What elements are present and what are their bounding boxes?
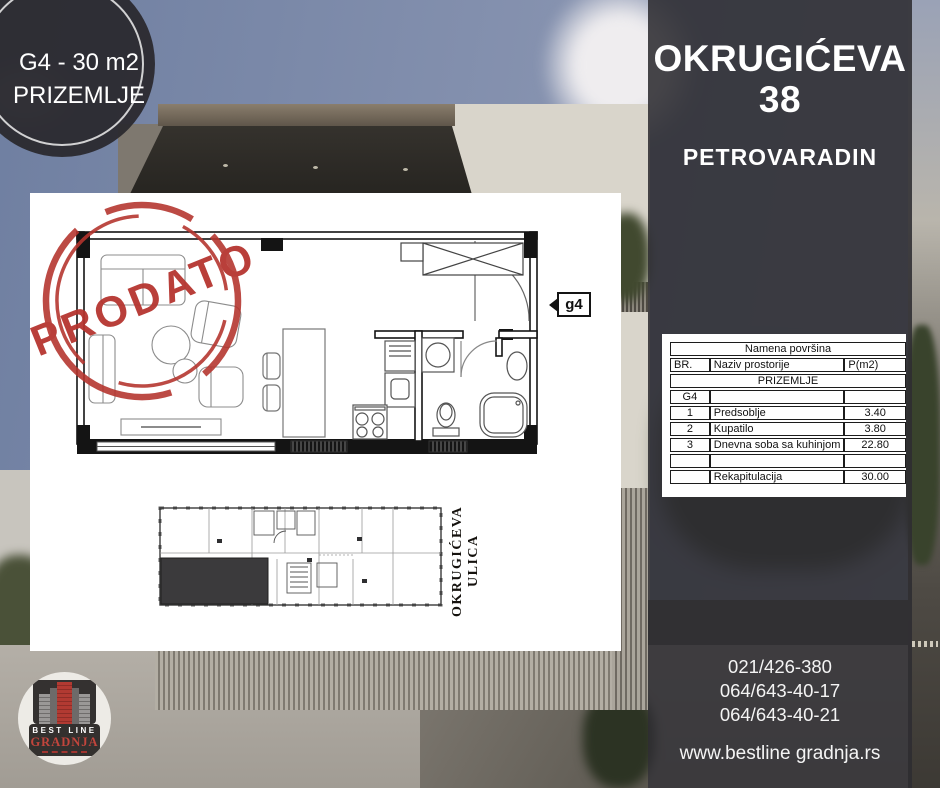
company-logo: BEST LINE GRADNJA — [18, 672, 111, 765]
logo-name-line2: GRADNJA — [18, 735, 111, 750]
unit-badge-text: G4 - 30 m2 PRIZEMLJE — [0, 46, 160, 112]
sold-stamp: PRODATO — [24, 189, 260, 413]
table-row-recap: Rekapitulacija 30.00 — [670, 470, 906, 484]
table-row: 3 Dnevna soba sa kuhinjom 22.80 — [670, 438, 906, 452]
address-title-line2: 38 — [648, 79, 912, 120]
phone-number: 021/426-380 — [648, 655, 912, 679]
logo-name-line1: BEST LINE — [18, 726, 111, 735]
building-site-plan — [157, 503, 445, 611]
ceiling-light — [223, 164, 228, 167]
ceiling-light — [313, 166, 318, 169]
unit-tag: g4 — [557, 292, 591, 317]
background-roof-fascia — [158, 104, 455, 126]
phone-number: 064/643-40-21 — [648, 703, 912, 727]
col-header-br: BR. — [670, 358, 710, 372]
table-group: G4 — [670, 390, 710, 404]
address-title-line1: OKRUGIĆEVA — [648, 38, 912, 79]
background-roof-overhang — [128, 126, 473, 198]
col-header-name: Naziv prostorije — [710, 358, 845, 372]
flyer-root: g4 — [0, 0, 940, 788]
background-paving-detail — [912, 641, 938, 647]
website-url: www.bestline gradnja.rs — [648, 743, 912, 765]
floor-plan-sheet: g4 — [30, 193, 621, 651]
logo-building-red-icon — [57, 682, 72, 724]
city-subtitle: PETROVARADIN — [648, 144, 912, 171]
street-label: OKRUGIĆEVA ULICA — [450, 499, 476, 623]
table-title: Namena površina — [670, 342, 906, 356]
table-row: 2 Kupatilo 3.80 — [670, 422, 906, 436]
area-table-box: Namena površina BR. Naziv prostorije P(m… — [662, 334, 906, 497]
table-section: PRIZEMLJE — [670, 374, 906, 388]
background-slat-fence — [155, 646, 648, 710]
area-table: Namena površina BR. Naziv prostorije P(m… — [670, 340, 906, 486]
sold-unit-highlight — [161, 558, 268, 604]
table-row: 1 Predsoblje 3.40 — [670, 406, 906, 420]
unit-badge-unit: G4 - 30 m2 — [0, 46, 160, 79]
ceiling-light — [403, 168, 408, 171]
col-header-area: P(m2) — [844, 358, 906, 372]
logo-tagline-divider — [42, 751, 87, 753]
info-panel: OKRUGIĆEVA 38 PETROVARADIN Namena površi… — [648, 0, 912, 788]
unit-badge-floor: PRIZEMLJE — [0, 79, 160, 112]
phone-number: 064/643-40-17 — [648, 679, 912, 703]
phone-numbers: 021/426-380 064/643-40-17 064/643-40-21 — [648, 655, 912, 727]
table-row-empty — [670, 454, 906, 468]
